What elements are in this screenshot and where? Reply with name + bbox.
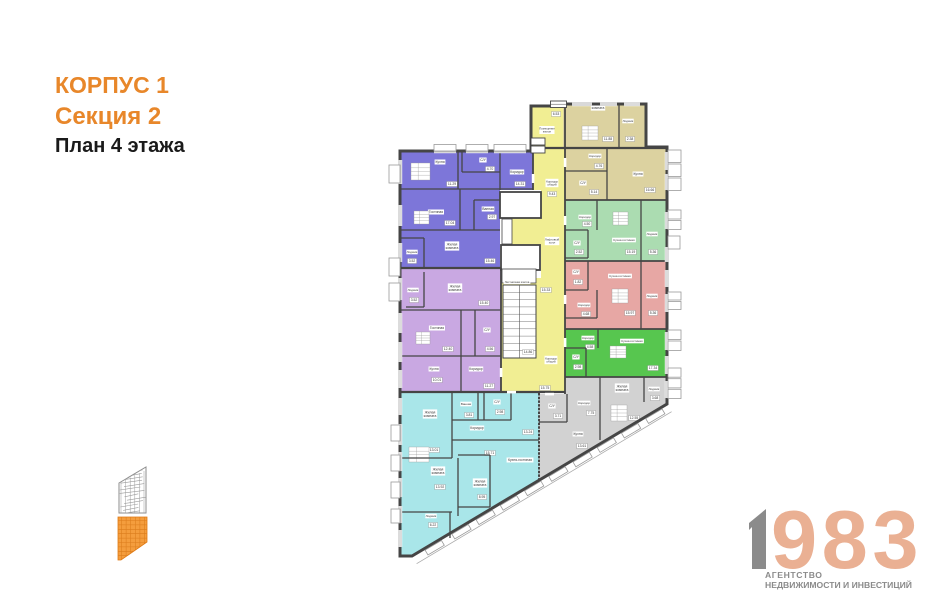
svg-text:Лоджия: Лоджия	[649, 387, 660, 391]
svg-text:15.46: 15.46	[486, 259, 495, 263]
svg-text:комната: комната	[592, 106, 605, 110]
svg-text:Коридор: Коридор	[589, 154, 601, 158]
svg-text:комната: комната	[424, 414, 437, 418]
svg-text:Коридор: Коридор	[469, 367, 483, 371]
svg-text:16.66: 16.66	[646, 188, 655, 192]
svg-text:Лоджия: Лоджия	[408, 288, 419, 292]
svg-text:Лестничная клетка: Лестничная клетка	[505, 280, 530, 284]
svg-text:15.33: 15.33	[542, 288, 551, 292]
svg-text:12.55: 12.55	[630, 416, 639, 420]
svg-text:2.97: 2.97	[489, 215, 496, 219]
svg-text:4.56: 4.56	[487, 347, 494, 351]
svg-text:Кухня: Кухня	[573, 432, 582, 436]
svg-text:9.43: 9.43	[549, 192, 556, 196]
svg-text:5.36: 5.36	[650, 250, 657, 254]
svg-text:13.24: 13.24	[524, 430, 533, 434]
svg-text:2.98: 2.98	[497, 410, 504, 414]
svg-text:17.34: 17.34	[649, 366, 658, 370]
svg-text:КОРПУС 1: КОРПУС 1	[55, 72, 169, 98]
svg-text:15.75: 15.75	[541, 386, 550, 390]
svg-text:11.88: 11.88	[604, 137, 612, 141]
svg-text:3.52: 3.52	[411, 298, 418, 302]
svg-text:С/У: С/У	[573, 355, 579, 359]
svg-text:4.68: 4.68	[583, 312, 590, 316]
svg-text:8.95: 8.95	[479, 495, 486, 499]
svg-text:Кухня-гостиная: Кухня-гостиная	[621, 339, 643, 343]
svg-text:Коридор: Коридор	[470, 426, 484, 430]
svg-text:С/У: С/У	[580, 181, 586, 185]
svg-text:13.61: 13.61	[578, 444, 587, 448]
svg-text:комната: комната	[432, 471, 445, 475]
svg-text:Кухня-гостиная: Кухня-гостиная	[613, 238, 635, 242]
svg-text:17.04: 17.04	[446, 221, 455, 225]
svg-text:С/У: С/У	[480, 158, 486, 162]
svg-text:3.71: 3.71	[555, 414, 562, 418]
svg-text:Ванная: Ванная	[482, 207, 494, 211]
svg-text:11.29: 11.29	[448, 182, 456, 186]
svg-text:6.22: 6.22	[430, 523, 437, 527]
svg-text:Секция 2: Секция 2	[55, 103, 161, 130]
svg-text:14.86: 14.86	[524, 350, 533, 354]
svg-text:Кухня-гостиная: Кухня-гостиная	[508, 458, 532, 462]
svg-text:Лоджия: Лоджия	[426, 514, 437, 518]
svg-text:3.81: 3.81	[466, 413, 473, 417]
svg-text:2.52: 2.52	[576, 250, 583, 254]
svg-text:2.98: 2.98	[575, 365, 582, 369]
svg-text:АГЕНТСТВО: АГЕНТСТВО	[765, 570, 823, 580]
svg-text:С/У: С/У	[549, 404, 555, 408]
svg-text:С/У: С/У	[574, 241, 580, 245]
svg-text:3.52: 3.52	[409, 259, 416, 263]
svg-text:С/У: С/У	[484, 328, 490, 332]
svg-text:Коридор: Коридор	[582, 336, 594, 340]
svg-text:комната: комната	[449, 288, 462, 292]
svg-text:жилое: жилое	[543, 129, 552, 133]
svg-text:Коридор: Коридор	[578, 401, 590, 405]
svg-text:13.01: 13.01	[430, 448, 439, 452]
svg-text:1.82: 1.82	[575, 280, 582, 284]
svg-text:Лоджия: Лоджия	[647, 294, 658, 298]
svg-text:11.27: 11.27	[485, 384, 493, 388]
svg-text:15.40: 15.40	[480, 301, 489, 305]
svg-text:комната: комната	[474, 483, 487, 487]
svg-text:15.97: 15.97	[626, 311, 635, 315]
svg-text:Коридор: Коридор	[510, 170, 524, 174]
svg-text:Коридор: Коридор	[579, 215, 591, 219]
svg-text:Ванная: Ванная	[461, 402, 472, 406]
svg-text:Кухня: Кухня	[429, 367, 438, 371]
svg-text:4.76: 4.76	[596, 164, 603, 168]
svg-text:С/У: С/У	[573, 270, 579, 274]
svg-text:План 4 этажа: План 4 этажа	[55, 135, 186, 157]
svg-text:10.01: 10.01	[433, 378, 442, 382]
svg-text:Лоджия: Лоджия	[623, 119, 634, 123]
svg-text:6.53: 6.53	[553, 112, 560, 116]
svg-text:4.50: 4.50	[584, 222, 591, 226]
svg-text:13.92: 13.92	[436, 485, 445, 489]
svg-text:С/У: С/У	[494, 400, 500, 404]
svg-text:НЕДВИЖИМОСТИ И ИНВЕСТИЦИЙ: НЕДВИЖИМОСТИ И ИНВЕСТИЦИЙ	[765, 579, 912, 590]
svg-text:Гостиная: Гостиная	[430, 326, 444, 330]
svg-text:2.38: 2.38	[627, 137, 634, 141]
svg-text:Кухня: Кухня	[633, 172, 642, 176]
svg-text:Лоджия: Лоджия	[407, 250, 418, 254]
svg-text:5.14: 5.14	[591, 190, 598, 194]
svg-text:общий: общий	[546, 360, 556, 364]
svg-text:12.40: 12.40	[444, 347, 453, 351]
svg-text:14.31: 14.31	[516, 182, 525, 186]
svg-text:общий: общий	[547, 183, 557, 187]
svg-text:3.68: 3.68	[652, 396, 659, 400]
svg-text:4.58: 4.58	[587, 345, 594, 349]
svg-text:Коридор: Коридор	[578, 303, 590, 307]
svg-text:Гостиная: Гостиная	[429, 210, 443, 214]
svg-text:4.70: 4.70	[487, 167, 494, 171]
svg-text:Кухня: Кухня	[435, 160, 444, 164]
svg-text:5.36: 5.36	[650, 311, 657, 315]
svg-text:комната: комната	[616, 388, 629, 392]
svg-text:Лоджия: Лоджия	[647, 232, 658, 236]
svg-text:комната: комната	[446, 246, 459, 250]
svg-text:Кухня-гостиная: Кухня-гостиная	[609, 274, 631, 278]
svg-text:15.19: 15.19	[627, 250, 636, 254]
svg-text:7.75: 7.75	[588, 411, 595, 415]
svg-text:холл: холл	[549, 241, 556, 245]
